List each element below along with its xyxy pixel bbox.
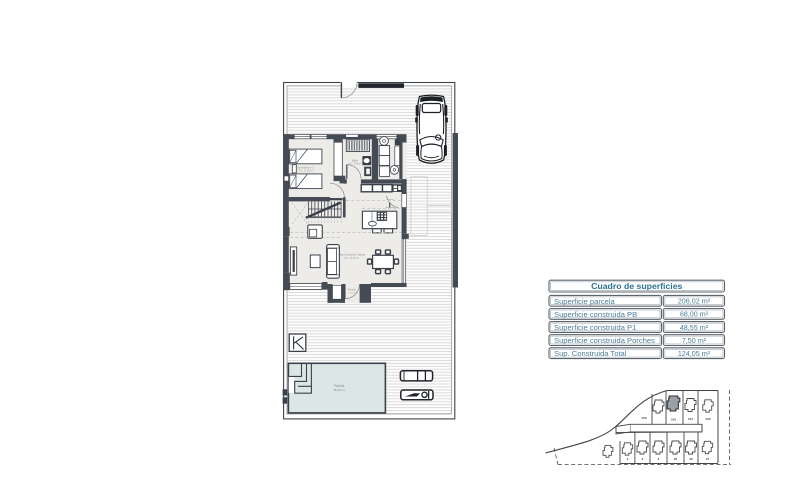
svg-text:102: 102 (671, 418, 676, 422)
svg-text:7,50 m²: 7,50 m² (348, 291, 356, 294)
svg-text:101: 101 (688, 417, 693, 421)
svg-text:124,05 m²: 124,05 m² (678, 349, 711, 358)
svg-text:48,55 m²: 48,55 m² (680, 323, 709, 332)
svg-text:206,02 m²: 206,02 m² (678, 297, 711, 306)
svg-text:S.U. 24,60 m²: S.U. 24,60 m² (344, 257, 359, 260)
svg-text:25: 25 (674, 457, 678, 461)
svg-text:7,50 m²: 7,50 m² (682, 336, 707, 345)
svg-text:103: 103 (641, 416, 646, 420)
svg-text:S.U. 11,00 m²: S.U. 11,00 m² (299, 170, 314, 173)
svg-text:Superficie parcela: Superficie parcela (554, 297, 616, 306)
svg-text:Superficie construida Porches: Superficie construida Porches (554, 336, 655, 345)
svg-text:68,00 m²: 68,00 m² (680, 310, 709, 319)
svg-text:27: 27 (706, 457, 710, 461)
svg-text:18,00 m²: 18,00 m² (333, 388, 345, 392)
svg-text:100: 100 (705, 417, 710, 421)
svg-text:Porche: Porche (348, 289, 356, 292)
svg-text:Recibidor: Recibidor (386, 206, 396, 209)
svg-text:Cuadro de superficies: Cuadro de superficies (591, 281, 682, 291)
svg-text:Cocina: Cocina (387, 199, 395, 201)
svg-text:Superficie construida PB: Superficie construida PB (554, 310, 637, 319)
svg-text:Sup. Construida Total: Sup. Construida Total (554, 349, 627, 358)
svg-text:Superficie construida P1: Superficie construida P1 (554, 323, 636, 332)
svg-text:26: 26 (689, 457, 693, 461)
svg-text:S.U. 3,05 m²: S.U. 3,05 m² (348, 163, 362, 166)
